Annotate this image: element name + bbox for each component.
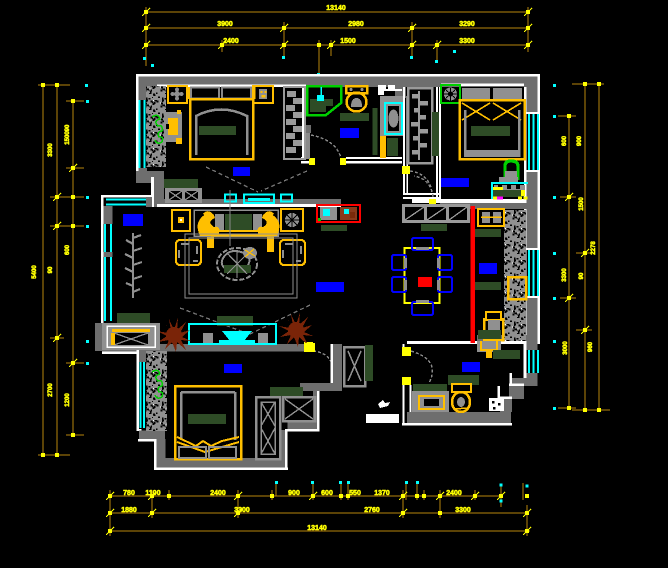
svg-text:1370: 1370	[374, 490, 390, 497]
svg-text:13140: 13140	[326, 5, 346, 12]
svg-text:90: 90	[48, 266, 54, 273]
svg-text:3290: 3290	[459, 21, 475, 28]
svg-text:600: 600	[321, 490, 333, 497]
svg-text:1100: 1100	[145, 490, 160, 497]
svg-text:3300: 3300	[234, 507, 250, 514]
svg-text:600: 600	[562, 135, 568, 146]
svg-text:1500: 1500	[340, 38, 356, 45]
svg-text:3300: 3300	[455, 507, 471, 514]
svg-text:90: 90	[65, 124, 71, 131]
svg-text:900: 900	[288, 490, 300, 497]
svg-text:960: 960	[588, 341, 594, 352]
svg-text:1880: 1880	[121, 507, 137, 514]
svg-text:2980: 2980	[348, 21, 364, 28]
svg-text:5400: 5400	[32, 265, 38, 279]
svg-text:2278: 2278	[591, 241, 597, 255]
svg-text:2400: 2400	[223, 38, 239, 45]
svg-text:600: 600	[65, 244, 71, 255]
svg-text:3000: 3000	[563, 341, 569, 355]
svg-text:2760: 2760	[364, 507, 380, 514]
svg-text:3900: 3900	[217, 21, 233, 28]
svg-text:550: 550	[349, 490, 361, 497]
svg-text:2700: 2700	[48, 383, 54, 397]
svg-text:3300: 3300	[48, 143, 54, 157]
svg-text:13140: 13140	[307, 525, 327, 532]
svg-text:1500: 1500	[579, 197, 585, 211]
svg-text:90: 90	[579, 272, 585, 279]
svg-text:900: 900	[577, 135, 583, 146]
svg-text:780: 780	[123, 490, 135, 497]
svg-text:3300: 3300	[562, 268, 568, 282]
svg-text:1500: 1500	[65, 131, 71, 145]
svg-text:1200: 1200	[65, 393, 71, 407]
svg-text:3300: 3300	[459, 38, 475, 45]
svg-text:2400: 2400	[446, 490, 462, 497]
svg-text:2400: 2400	[210, 490, 226, 497]
